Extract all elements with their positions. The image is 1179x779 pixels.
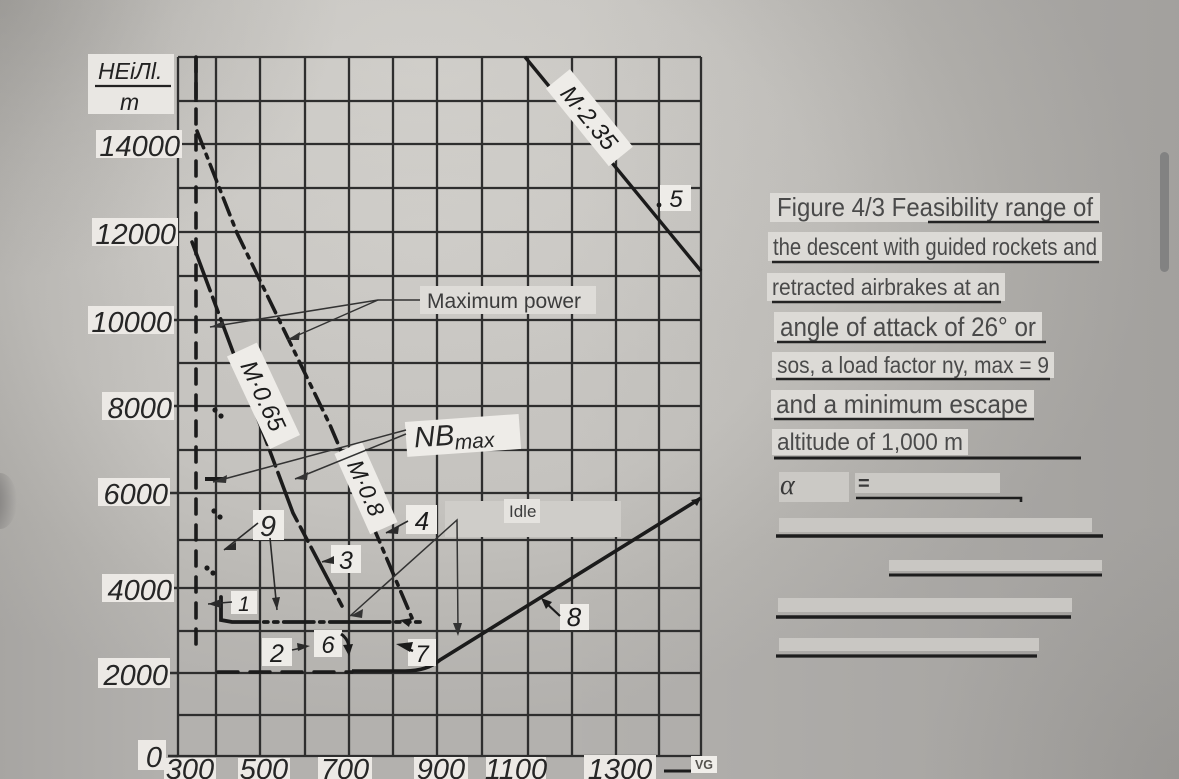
- svg-text:and a minimum escape: and a minimum escape: [776, 389, 1028, 419]
- svg-text:1100: 1100: [485, 754, 547, 779]
- svg-text:1300: 1300: [588, 754, 653, 779]
- svg-text:700: 700: [321, 754, 369, 779]
- svg-text:10000: 10000: [91, 307, 172, 339]
- svg-text:500: 500: [240, 754, 288, 779]
- svg-text:retracted airbrakes at an: retracted airbrakes at an: [772, 274, 1000, 300]
- svg-text:300: 300: [166, 754, 214, 779]
- svg-text:the descent with guided rocket: the descent with guided rockets and: [773, 234, 1097, 261]
- svg-text:6: 6: [321, 632, 335, 659]
- svg-text:9: 9: [260, 511, 276, 543]
- svg-text:m: m: [120, 89, 139, 115]
- svg-text:4: 4: [415, 506, 429, 536]
- svg-text:14000: 14000: [99, 131, 180, 163]
- svg-text:HEiЛl.: HEiЛl.: [98, 58, 162, 84]
- svg-text:6000: 6000: [103, 479, 168, 511]
- svg-text:3: 3: [339, 547, 353, 575]
- svg-text:=: =: [858, 473, 870, 495]
- svg-text:5: 5: [669, 186, 683, 213]
- svg-text:0: 0: [146, 742, 162, 774]
- svg-text:Idle: Idle: [509, 502, 536, 521]
- svg-text:8: 8: [567, 602, 582, 632]
- svg-text:Figure 4/3 Feasibility range o: Figure 4/3 Feasibility range of: [777, 192, 1094, 222]
- svg-text:900: 900: [417, 754, 465, 779]
- svg-text:8000: 8000: [107, 393, 172, 425]
- svg-text:VG: VG: [695, 758, 713, 772]
- svg-text:4000: 4000: [107, 575, 172, 607]
- svg-text:12000: 12000: [95, 219, 176, 251]
- svg-text:angle of attack of 26° or: angle of attack of 26° or: [780, 312, 1036, 342]
- svg-text:2000: 2000: [102, 660, 168, 692]
- svg-text:1: 1: [238, 593, 250, 616]
- svg-text:7: 7: [415, 641, 430, 668]
- svg-text:α: α: [780, 470, 796, 501]
- svg-text:2: 2: [269, 640, 284, 668]
- svg-text:altitude of 1,000 m: altitude of 1,000 m: [777, 429, 963, 456]
- svg-text:sos, a load factor ny, max = 9: sos, a load factor ny, max = 9: [777, 352, 1049, 378]
- svg-text:Maximum power: Maximum power: [427, 290, 581, 313]
